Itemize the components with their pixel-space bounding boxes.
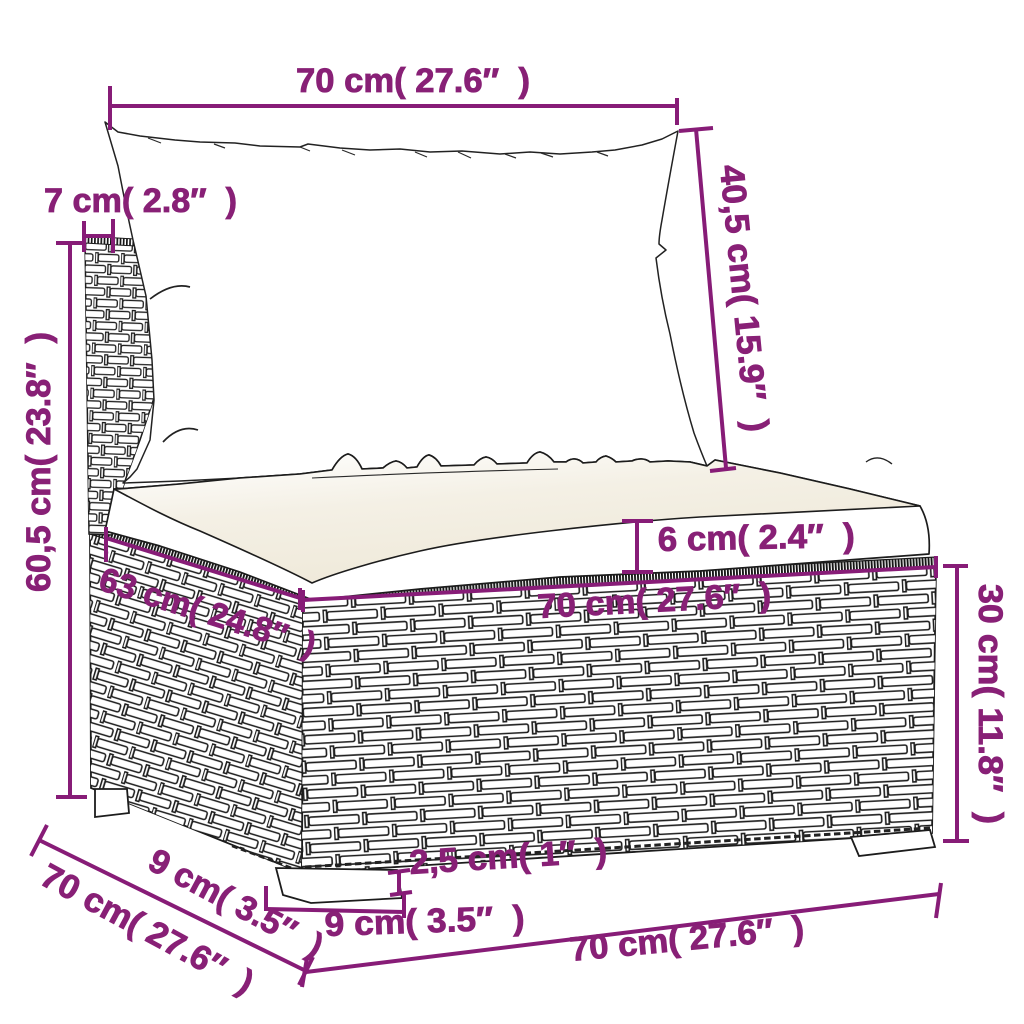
svg-text:7 cm( 2.8″ ): 7 cm( 2.8″ ) xyxy=(44,182,237,220)
svg-text:30 cm( 11.8″ ): 30 cm( 11.8″ ) xyxy=(971,584,1009,824)
svg-text:6 cm( 2.4″ ): 6 cm( 2.4″ ) xyxy=(657,517,855,559)
svg-text:9 cm( 3.5″ ): 9 cm( 3.5″ ) xyxy=(324,899,525,944)
svg-text:70 cm( 27.6″ ): 70 cm( 27.6″ ) xyxy=(296,62,530,100)
svg-text:60,5 cm( 23.8″ ): 60,5 cm( 23.8″ ) xyxy=(20,332,58,592)
